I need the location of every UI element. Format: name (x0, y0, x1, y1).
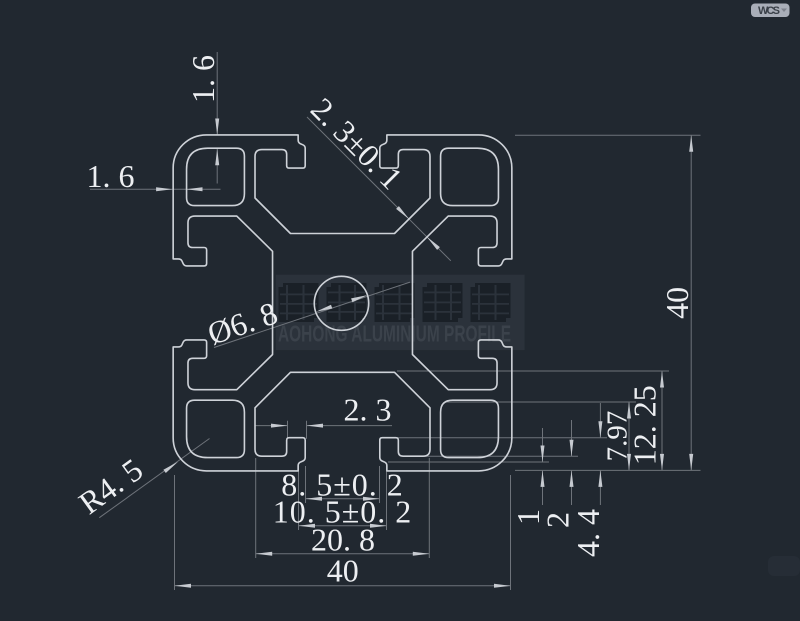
svg-text:AOHONG ALUMINIUM PROFILE: AOHONG ALUMINIUM PROFILE (278, 321, 511, 347)
svg-text:2. 3: 2. 3 (344, 391, 392, 427)
svg-text:40: 40 (659, 287, 695, 319)
svg-text:1. 6: 1. 6 (185, 55, 221, 103)
svg-text:4. 4: 4. 4 (570, 509, 606, 557)
svg-text:40: 40 (327, 553, 359, 589)
svg-text:WCS: WCS (758, 5, 780, 17)
svg-text:12. 25: 12. 25 (627, 385, 663, 465)
svg-text:1. 6: 1. 6 (87, 158, 135, 194)
